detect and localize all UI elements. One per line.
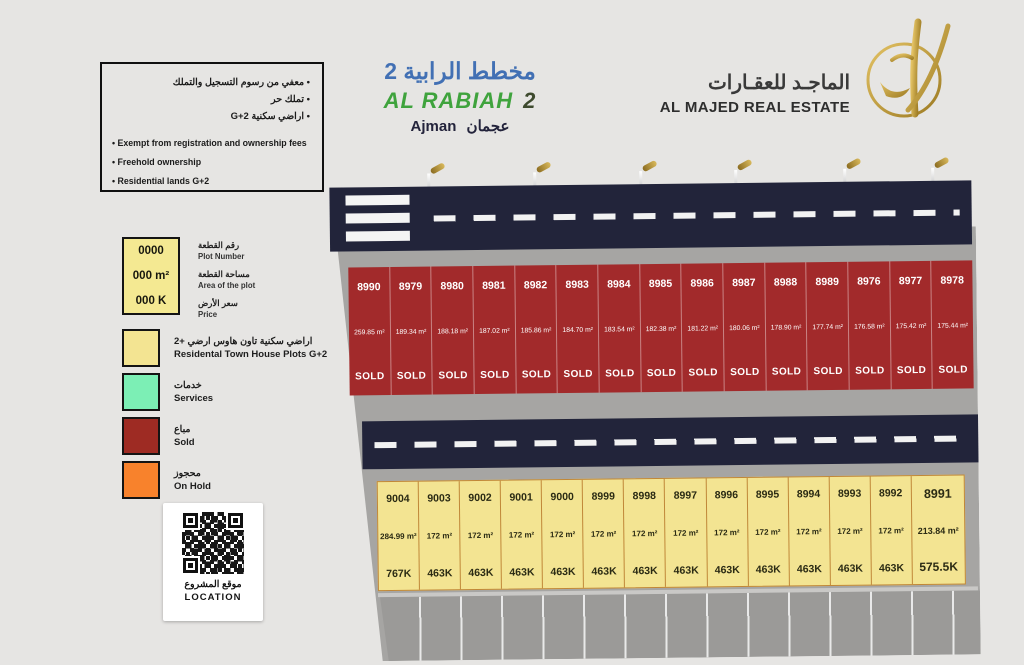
plot-status: SOLD xyxy=(688,367,718,378)
plot[interactable]: 8980 188.18 m² SOLD xyxy=(431,266,474,394)
plot-number: 8994 xyxy=(797,488,820,500)
legend-label-en: Residental Town House Plots G+2 xyxy=(174,349,327,360)
sold-plot-row: 8990 259.85 m² SOLD 8979 189.34 m² SOLD … xyxy=(348,260,973,395)
plot-status: SOLD xyxy=(605,368,635,379)
plot-status: SOLD xyxy=(813,366,843,377)
legend-label-ar: محجوز xyxy=(174,468,211,479)
plot-number: 8988 xyxy=(774,276,797,288)
plot-number: 8976 xyxy=(857,275,880,287)
plot-area: 183.54 m² xyxy=(604,326,635,333)
plot-area: 181.22 m² xyxy=(687,325,718,332)
info-lines-en: Exempt from registration and ownership f… xyxy=(112,134,310,191)
plot-price: 463K xyxy=(674,565,699,577)
plot-area: 172 m² xyxy=(591,529,616,538)
plot-area: 188.18 m² xyxy=(437,328,468,335)
plot-area: 259.85 m² xyxy=(354,329,385,336)
key-label: سعر الأرض Price xyxy=(198,298,318,319)
plot[interactable]: 8995 172 m² 463K xyxy=(746,477,788,585)
info-line-ar: تملك حر xyxy=(112,91,310,108)
plot-number: 8998 xyxy=(633,490,656,502)
legend-label-ar: مباع xyxy=(174,424,195,435)
plot[interactable]: 8976 176.58 m² SOLD xyxy=(847,261,890,389)
plot-number: 8981 xyxy=(482,280,505,292)
legend-label-en: Sold xyxy=(174,437,195,448)
plot-area: 178.90 m² xyxy=(771,324,802,331)
plot-status: SOLD xyxy=(772,366,802,377)
plot-number: 8977 xyxy=(899,275,922,287)
plot-number: 8991 xyxy=(924,487,952,501)
plot-area: 213.84 m² xyxy=(918,525,959,535)
info-lines-ar: معفي من رسوم التسجيل والتملكتملك حراراضي… xyxy=(112,74,310,125)
project-title-number: 2 xyxy=(523,88,536,113)
plot-status: SOLD xyxy=(563,369,593,380)
plot[interactable]: 9003 172 m² 463K xyxy=(418,481,460,589)
plot-status: SOLD xyxy=(438,370,468,381)
plot[interactable]: 8993 172 m² 463K xyxy=(828,477,870,585)
plot-area: 189.34 m² xyxy=(396,328,427,335)
plot-status: SOLD xyxy=(897,365,927,376)
plot-price: 463K xyxy=(797,563,822,575)
plot-status: SOLD xyxy=(730,367,760,378)
plot-area: 284.99 m² xyxy=(380,532,417,541)
plot-number: 8995 xyxy=(756,489,779,501)
plot-number: 8983 xyxy=(565,279,588,291)
plot-number: 8997 xyxy=(674,490,697,502)
plot[interactable]: 8997 172 m² 463K xyxy=(664,478,706,586)
key-plot-price: 000 K xyxy=(136,295,167,307)
plot-status: SOLD xyxy=(355,371,385,382)
legend-swatch xyxy=(122,373,160,411)
plot[interactable]: 9004 284.99 m² 767K xyxy=(378,482,419,590)
plot-number: 8996 xyxy=(715,489,738,501)
key-label: رقم القطعة Plot Number xyxy=(198,240,318,261)
lane-dashes xyxy=(374,435,966,448)
plot[interactable]: 8981 187.02 m² SOLD xyxy=(472,266,515,394)
plot[interactable]: 8987 180.06 m² SOLD xyxy=(722,263,765,391)
project-title-arabic: مخطط الرابية 2 xyxy=(348,58,572,85)
plot[interactable]: 8986 181.22 m² SOLD xyxy=(681,263,724,391)
legend-swatch xyxy=(122,461,160,499)
plot-area: 185.86 m² xyxy=(521,327,552,334)
info-line-ar: اراضي سكنية G+2 xyxy=(112,108,310,125)
info-box: معفي من رسوم التسجيل والتملكتملك حراراضي… xyxy=(100,62,324,192)
plot-area: 172 m² xyxy=(878,526,903,535)
plot-price: 463K xyxy=(715,564,740,576)
plot-number: 8987 xyxy=(732,277,755,289)
plot-map: 8990 259.85 m² SOLD 8979 189.34 m² SOLD … xyxy=(325,168,983,665)
plot-number: 8992 xyxy=(879,487,902,499)
plot-area: 172 m² xyxy=(468,531,493,540)
plot-price: 463K xyxy=(591,565,616,577)
plot[interactable]: 8979 189.34 m² SOLD xyxy=(389,267,432,395)
plot-area: 177.74 m² xyxy=(812,323,843,330)
plot-area: 172 m² xyxy=(632,529,657,538)
middle-road xyxy=(362,414,979,469)
legend-swatch xyxy=(122,329,160,367)
top-road xyxy=(329,180,972,251)
legend-item: محجوز On Hold xyxy=(122,461,332,499)
plot-number: 9001 xyxy=(509,491,532,503)
plot-price: 463K xyxy=(509,566,534,578)
qr-finder-icon xyxy=(183,513,198,528)
plot-price: 463K xyxy=(838,563,863,575)
plot-number: 8984 xyxy=(607,278,630,290)
brand-name-arabic: الماجـد للعقـارات xyxy=(650,70,850,95)
location-label-ar: موقع المشروع xyxy=(163,579,263,590)
plot-area: 182.38 m² xyxy=(646,325,677,332)
brand-name-english: AL MAJED REAL ESTATE xyxy=(650,99,850,116)
plot[interactable]: 9001 172 m² 463K xyxy=(500,480,542,588)
legend-label-ar: اراضي سكنية تاون هاوس ارضي +2 xyxy=(174,336,327,347)
plot[interactable]: 8984 183.54 m² SOLD xyxy=(597,264,640,392)
plot-number: 8980 xyxy=(440,280,463,292)
plot-status: SOLD xyxy=(855,365,885,376)
plot[interactable]: 8985 182.38 m² SOLD xyxy=(639,264,682,392)
legend-item: اراضي سكنية تاون هاوس ارضي +2 Residental… xyxy=(122,329,332,367)
plot-number: 8978 xyxy=(940,274,963,286)
plot-number: 9000 xyxy=(550,491,573,503)
plot-area: 172 m² xyxy=(837,527,862,536)
plot[interactable]: 8999 172 m² 463K xyxy=(582,479,624,587)
legend-label-ar: خدمات xyxy=(174,380,213,391)
plot-number: 8986 xyxy=(690,277,713,289)
plot-number: 8982 xyxy=(524,279,547,291)
project-title-name: AL RABIAH xyxy=(384,88,514,113)
plot-area: 172 m² xyxy=(509,530,534,539)
legend-key-labels: رقم القطعة Plot Number مساحة القطعة Area… xyxy=(198,240,318,327)
plot[interactable]: 8977 175.42 m² SOLD xyxy=(889,261,932,389)
qr-code[interactable] xyxy=(182,512,244,574)
brand-emblem-icon xyxy=(852,16,968,126)
key-label-en: Plot Number xyxy=(198,252,318,261)
key-label-en: Price xyxy=(198,310,318,319)
plot-area: 172 m² xyxy=(550,530,575,539)
plot-number: 8989 xyxy=(815,276,838,288)
legend-label-en: On Hold xyxy=(174,481,211,492)
legend: اراضي سكنية تاون هاوس ارضي +2 Residental… xyxy=(122,329,332,505)
key-label: مساحة القطعة Area of the plot xyxy=(198,269,318,290)
plot-area: 172 m² xyxy=(796,527,821,536)
plot-price: 463K xyxy=(427,567,452,579)
plot[interactable]: 9002 172 m² 463K xyxy=(459,481,501,589)
legend-swatch xyxy=(122,417,160,455)
key-label-en: Area of the plot xyxy=(198,281,318,290)
qr-finder-icon xyxy=(228,513,243,528)
plot[interactable]: 8989 177.74 m² SOLD xyxy=(806,262,849,390)
plot[interactable]: 8983 184.70 m² SOLD xyxy=(556,265,599,393)
plot-number: 9004 xyxy=(386,493,409,505)
info-line-en: Freehold ownership xyxy=(112,153,310,172)
legend-key-card: 0000 000 m² 000 K xyxy=(122,237,180,315)
plot-status: SOLD xyxy=(938,364,968,375)
plot-area: 172 m² xyxy=(755,528,780,537)
key-plot-number: 0000 xyxy=(138,245,164,257)
plot-price: 463K xyxy=(756,564,781,576)
legend-label-en: Services xyxy=(174,393,213,404)
plot-status: SOLD xyxy=(522,369,552,380)
plot[interactable]: 8990 259.85 m² SOLD xyxy=(348,267,390,395)
plot-number: 8979 xyxy=(399,281,422,293)
plot-price: 463K xyxy=(633,565,658,577)
site-plan-poster: معفي من رسوم التسجيل والتملكتملك حراراضي… xyxy=(0,0,1024,665)
info-line-en: Exempt from registration and ownership f… xyxy=(112,134,310,153)
location-label-en: LOCATION xyxy=(163,592,263,603)
project-title-english: AL RABIAH2 xyxy=(348,88,572,114)
plot-area: 176.58 m² xyxy=(854,323,885,330)
plot-area: 187.02 m² xyxy=(479,327,510,334)
legend-item: خدمات Services xyxy=(122,373,332,411)
plot-status: SOLD xyxy=(397,371,427,382)
plot[interactable]: 8994 172 m² 463K xyxy=(787,477,829,585)
plot-area: 172 m² xyxy=(714,528,739,537)
plot-number: 8999 xyxy=(591,490,614,502)
plot-number: 8990 xyxy=(357,281,380,293)
lane-dashes xyxy=(434,210,960,222)
plot-number: 9003 xyxy=(427,492,450,504)
plot[interactable]: 9000 172 m² 463K xyxy=(541,480,583,588)
plot-area: 175.44 m² xyxy=(937,322,968,329)
plot[interactable]: 8998 172 m² 463K xyxy=(623,479,665,587)
key-label-ar: رقم القطعة xyxy=(198,240,318,251)
plot-price: 463K xyxy=(468,567,493,579)
zebra-crossing xyxy=(345,195,410,244)
plot-price: 463K xyxy=(550,566,575,578)
plot[interactable]: 8996 172 m² 463K xyxy=(705,478,747,586)
plot[interactable]: 8978 175.44 m² SOLD xyxy=(931,260,974,388)
plot-number: 8985 xyxy=(649,278,672,290)
plot-area: 172 m² xyxy=(673,529,698,538)
location-card: موقع المشروع LOCATION xyxy=(163,503,263,621)
plot-price: 767K xyxy=(386,568,411,580)
page-title: مخطط الرابية 2 AL RABIAH2 عجمان Ajman xyxy=(348,58,572,135)
key-label-ar: مساحة القطعة xyxy=(198,269,318,280)
plot-area: 175.42 m² xyxy=(896,322,927,329)
plot[interactable]: 8991 213.84 m² 575.5K xyxy=(910,475,964,584)
info-line-en: Residential lands G+2 xyxy=(112,172,310,191)
plot[interactable]: 8988 178.90 m² SOLD xyxy=(764,262,807,390)
plot-price: 575.5K xyxy=(919,560,958,574)
info-line-ar: معفي من رسوم التسجيل والتملك xyxy=(112,74,310,91)
plot-status: SOLD xyxy=(480,370,510,381)
plot-area: 172 m² xyxy=(427,531,452,540)
plot-status: SOLD xyxy=(647,368,677,379)
plot-number: 8993 xyxy=(838,488,861,500)
plot-area: 180.06 m² xyxy=(729,324,760,331)
available-plot-row: 9004 284.99 m² 767K 9003 172 m² 463K 900… xyxy=(377,474,966,591)
plot[interactable]: 8982 185.86 m² SOLD xyxy=(514,265,557,393)
key-label-ar: سعر الأرض xyxy=(198,298,318,309)
plot-price: 463K xyxy=(879,562,904,574)
plot-area: 184.70 m² xyxy=(562,326,593,333)
plot[interactable]: 8992 172 m² 463K xyxy=(869,476,911,584)
legend-item: مباع Sold xyxy=(122,417,332,455)
key-plot-area: 000 m² xyxy=(133,270,169,282)
future-plots-strip xyxy=(380,590,981,661)
brand-block: الماجـد للعقـارات AL MAJED REAL ESTATE xyxy=(650,70,850,116)
project-city: عجمان Ajman xyxy=(348,117,572,135)
plot-number: 9002 xyxy=(468,492,491,504)
qr-finder-icon xyxy=(183,558,198,573)
